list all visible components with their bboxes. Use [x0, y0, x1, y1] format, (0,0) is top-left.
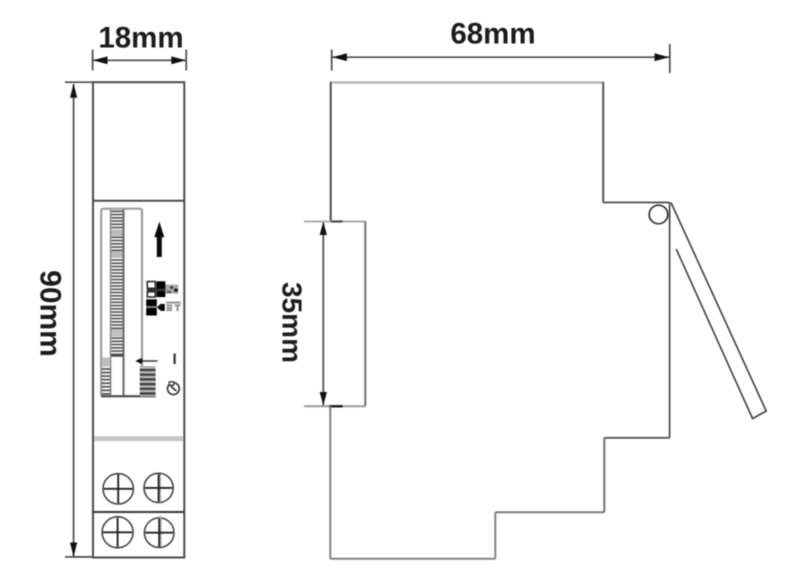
svg-text:68mm: 68mm — [450, 18, 535, 51]
svg-text:35mm: 35mm — [277, 282, 308, 363]
svg-text:18mm: 18mm — [98, 22, 183, 55]
svg-text:90mm: 90mm — [34, 270, 67, 357]
